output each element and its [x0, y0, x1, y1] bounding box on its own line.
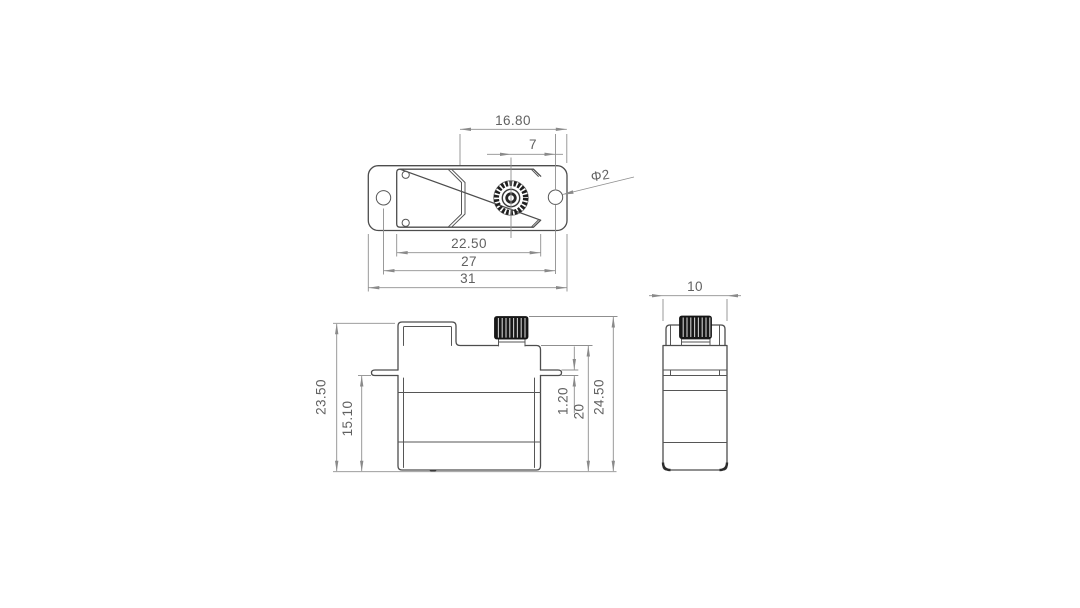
- side-bottom-corner-left: [663, 463, 671, 471]
- case-screw-bottom: [402, 219, 409, 226]
- dim-label-flange-thickness: 1.20: [556, 387, 571, 415]
- top-view-dimensions: 16.80 7 Φ2 22.50: [368, 113, 634, 292]
- servo-dimension-drawing: 16.80 7 Φ2 22.50: [0, 0, 1080, 608]
- dim-label-body-upper-height: 20: [572, 404, 587, 420]
- top-view: [368, 158, 567, 239]
- dim-label-shaft-to-hole: 7: [529, 137, 537, 152]
- dim-label-case-depth: 10: [687, 279, 703, 294]
- mounting-tab-left: [372, 370, 399, 376]
- front-upper-inner-wall: [404, 327, 452, 346]
- dim-label-body-width: 22.50: [451, 236, 487, 251]
- side-view-dimensions: 10: [649, 279, 741, 321]
- dim-shaft-offset: 16.80: [460, 113, 567, 165]
- divider-bevel-outer: [448, 169, 462, 227]
- front-view: [372, 317, 562, 473]
- dim-label-overall-height: 24.50: [592, 379, 607, 415]
- side-body-outline: [663, 346, 727, 471]
- divider-bevel-inner: [452, 169, 466, 227]
- front-upper-left-outline: [398, 322, 499, 370]
- mounting-hole-left: [376, 191, 390, 205]
- front-lower-outline: [398, 376, 541, 471]
- dim-case-depth: 10: [649, 279, 741, 321]
- dim-label-shaft-offset: 16.80: [495, 113, 531, 128]
- dim-overall-height: 24.50: [529, 317, 618, 472]
- case-screw-top: [402, 171, 409, 178]
- mounting-hole-right: [548, 190, 562, 204]
- front-upper-right-outline: [525, 346, 541, 371]
- dim-label-hole-spacing: 27: [461, 254, 477, 269]
- spline-gear-side: [680, 316, 712, 339]
- dim-label-hole-diameter: Φ2: [590, 167, 611, 185]
- dim-hole-diameter: Φ2: [563, 167, 635, 195]
- dim-label-case-height: 23.50: [314, 379, 329, 415]
- side-bottom-corner-right: [720, 463, 728, 471]
- dim-case-height: 23.50: [314, 323, 396, 471]
- mounting-tab-right: [541, 370, 562, 376]
- dim-label-overall-width: 31: [460, 271, 476, 286]
- drawing-canvas: 16.80 7 Φ2 22.50: [0, 0, 1080, 608]
- front-view-dimensions: 23.50 15.10 1.20 20: [314, 317, 618, 472]
- dim-label-below-flange: 15.10: [340, 401, 355, 437]
- spline-gear-front: [495, 317, 529, 340]
- side-view: [663, 316, 727, 470]
- dim-below-flange: 15.10: [340, 376, 371, 472]
